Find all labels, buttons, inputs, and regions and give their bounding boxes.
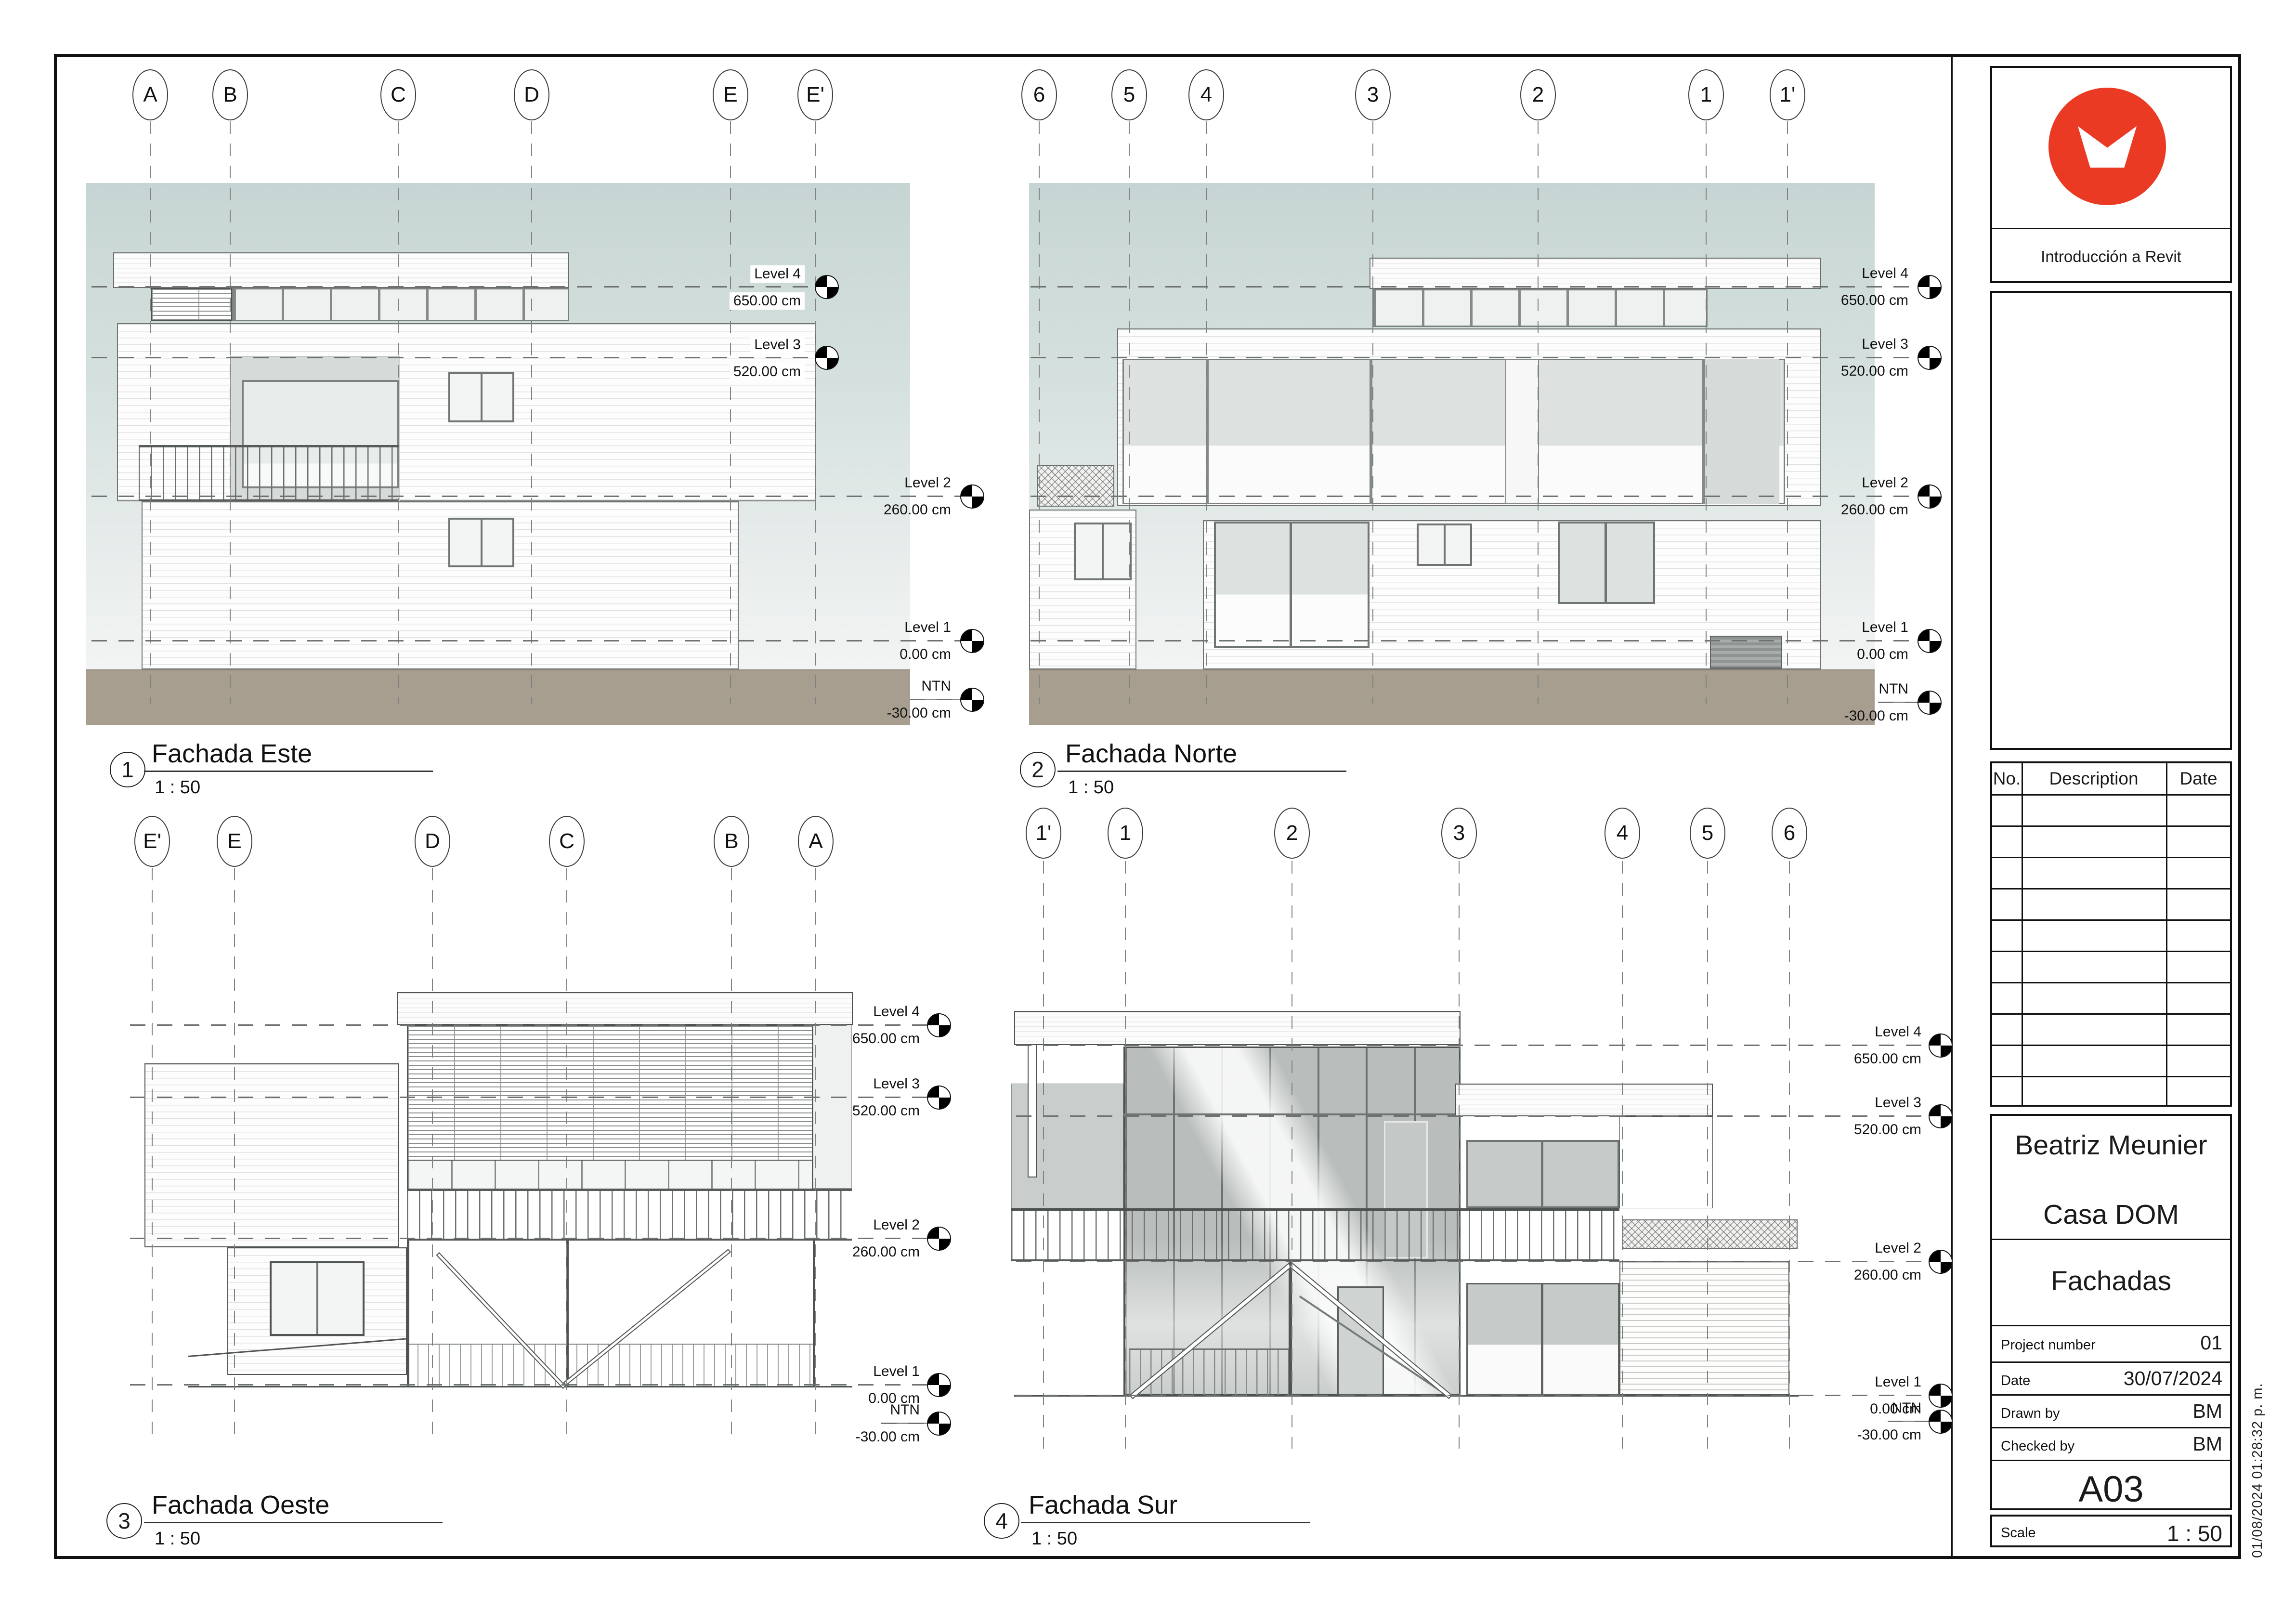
level-head-icon [927, 1013, 951, 1037]
view-title: Fachada Sur [1029, 1490, 1177, 1520]
view-title: Fachada Oeste [152, 1490, 329, 1520]
field-value-checked-by: BM [2193, 1433, 2223, 1455]
view-number-1: 1 [110, 752, 145, 787]
grid-line-E' [815, 121, 816, 704]
field-label-project-number: Project number [2001, 1337, 2096, 1353]
grid-line-1 [1706, 121, 1707, 704]
level-line-NTN [1878, 702, 1919, 703]
view-number-4: 4 [984, 1503, 1019, 1539]
field-label-date: Date [2001, 1373, 2030, 1389]
level-elevation: 260.00 cm [884, 502, 951, 518]
revision-col-date: Date [2166, 763, 2231, 794]
level-head-icon [927, 1373, 951, 1397]
level-name: Level 4 [1875, 1024, 1921, 1040]
norte-right-panel [1705, 359, 1779, 504]
grid-bubble-5: 5 [1690, 808, 1725, 859]
level-elevation: -30.00 cm [1844, 708, 1908, 724]
level-name: Level 1 [1862, 619, 1908, 636]
revision-empty-row [1992, 919, 2230, 952]
norte-roof-slab [1370, 258, 1821, 289]
level-name: Level 4 [1862, 265, 1908, 282]
level-head-icon [927, 1227, 951, 1251]
level-line-Level 2 [91, 496, 962, 497]
oeste-louver-screen [407, 1025, 813, 1161]
level-line-Level 4 [1016, 1045, 1930, 1046]
level-elevation: 260.00 cm [852, 1244, 920, 1260]
este-clerestory-louver [151, 288, 232, 321]
view-scale: 1 : 50 [155, 777, 200, 798]
level-elevation: 520.00 cm [852, 1103, 920, 1119]
grid-line-3 [1459, 861, 1460, 1449]
view-number-3: 3 [106, 1503, 142, 1539]
level-elevation: -30.00 cm [1857, 1427, 1921, 1443]
grid-line-C [398, 121, 399, 704]
course-title: Introducción a Revit [1992, 229, 2230, 284]
grid-bubble-1: 1 [1688, 69, 1724, 120]
este-window-mid [448, 372, 514, 422]
level-line-Level 1 [130, 1384, 928, 1386]
grid-bubble-3: 3 [1441, 808, 1477, 859]
level-head-icon [1918, 275, 1942, 299]
revision-empty-row [1992, 794, 2230, 827]
level-elevation: 520.00 cm [730, 363, 805, 380]
grid-line-E [730, 121, 731, 704]
grid-line-5 [1707, 861, 1708, 1449]
level-line-Level 4 [91, 286, 816, 288]
grid-line-4 [1622, 861, 1623, 1449]
grid-bubble-E: E [713, 69, 748, 120]
level-line-Level 4 [1031, 286, 1919, 288]
project-name: Casa DOM [1992, 1199, 2230, 1230]
domestika-logo-icon [2048, 88, 2166, 205]
view-title-underline [1021, 1522, 1310, 1523]
field-label-checked-by: Checked by [2001, 1439, 2074, 1454]
level-name: NTN [921, 678, 951, 694]
level-head-icon [927, 1412, 951, 1436]
grid-bubble-E': E' [797, 69, 833, 120]
view-scale: 1 : 50 [155, 1529, 200, 1549]
grid-line-1' [1043, 861, 1044, 1449]
grid-line-6 [1039, 121, 1040, 704]
level-elevation: 260.00 cm [1841, 502, 1908, 518]
scale-value: 1 : 50 [2167, 1520, 2222, 1546]
level-head-icon [960, 484, 984, 509]
grid-bubble-2: 2 [1274, 808, 1310, 859]
level-head-icon [1929, 1410, 1953, 1434]
este-roof-slab [113, 252, 569, 288]
norte-sliding-door-mullion [1290, 522, 1292, 648]
level-elevation: 0.00 cm [900, 646, 951, 663]
level-name: Level 2 [1862, 475, 1908, 491]
este-ground [86, 669, 910, 725]
grid-line-B [731, 868, 732, 1441]
view-title-underline [1057, 771, 1346, 772]
sheet-name: Fachadas [1992, 1265, 2230, 1297]
sur-right-glazed-doors-mullion [1541, 1283, 1543, 1395]
grid-bubble-A: A [132, 69, 168, 120]
view-scale: 1 : 50 [1031, 1529, 1077, 1549]
grid-bubble-1: 1 [1108, 808, 1143, 859]
grid-bubble-5: 5 [1111, 69, 1147, 120]
titleblock-empty-box [1990, 291, 2232, 750]
field-value-drawn-by: BM [2193, 1400, 2223, 1423]
level-line-NTN [1888, 1421, 1930, 1422]
level-line-Level 1 [1016, 1395, 1930, 1396]
revision-table: No. Description Date [1990, 761, 2232, 1107]
grid-line-1' [1787, 121, 1788, 704]
grid-bubble-C: C [549, 816, 585, 867]
grid-line-D [531, 121, 532, 704]
level-head-icon [1929, 1384, 1953, 1408]
este-balcony-railing [139, 445, 399, 501]
view-number-2: 2 [1020, 752, 1056, 787]
level-elevation: 650.00 cm [852, 1031, 920, 1047]
level-head-icon [1918, 691, 1942, 715]
norte-window-small [1417, 523, 1472, 566]
grid-line-A [815, 868, 816, 1441]
level-line-Level 3 [91, 357, 816, 358]
grid-line-B [230, 121, 231, 704]
sur-right-wall [1619, 1116, 1713, 1208]
level-head-icon [1918, 484, 1942, 509]
level-line-Level 2 [1016, 1261, 1930, 1262]
revision-col-description: Description [2022, 763, 2166, 794]
grid-line-2 [1291, 861, 1292, 1449]
grid-line-2 [1538, 121, 1539, 704]
level-name: Level 3 [750, 336, 805, 353]
oeste-side-panel [813, 1025, 852, 1189]
level-line-NTN [881, 1423, 928, 1424]
field-value-date: 30/07/2024 [2124, 1367, 2222, 1390]
level-name: Level 4 [750, 265, 805, 283]
level-name: NTN [1879, 681, 1908, 697]
sur-lower-door [1337, 1286, 1384, 1395]
level-name: Level 1 [1875, 1374, 1921, 1390]
grid-bubble-D: D [514, 69, 549, 120]
sur-lower-slats [1129, 1348, 1291, 1395]
scale-label: Scale [2001, 1525, 2036, 1541]
view-scale: 1 : 50 [1068, 777, 1114, 798]
grid-bubble-1': 1' [1026, 808, 1061, 859]
grid-bubble-E': E' [134, 816, 170, 867]
sur-right-lower-volume [1619, 1261, 1789, 1395]
level-head-icon [1929, 1033, 1953, 1058]
level-elevation: 520.00 cm [1854, 1122, 1921, 1138]
grid-bubble-1': 1' [1770, 69, 1805, 120]
grid-line-C [566, 868, 567, 1441]
field-label-drawn-by: Drawn by [2001, 1406, 2060, 1422]
grid-bubble-6: 6 [1021, 69, 1057, 120]
revision-empty-row [1992, 857, 2230, 889]
sur-right-roof [1455, 1084, 1713, 1116]
revision-empty-row [1992, 951, 2230, 983]
grid-line-A [150, 121, 151, 704]
norte-fence-hatch [1037, 465, 1114, 507]
level-name: NTN [890, 1402, 920, 1418]
level-line-Level 1 [91, 640, 962, 641]
level-elevation: 260.00 cm [1854, 1267, 1921, 1283]
level-name: Level 1 [873, 1363, 920, 1380]
grid-bubble-A: A [798, 816, 834, 867]
level-line-Level 2 [130, 1238, 928, 1239]
level-head-icon [1918, 346, 1942, 370]
norte-ground [1029, 669, 1875, 725]
oeste-post-left [407, 1241, 409, 1386]
level-name: Level 1 [904, 619, 951, 636]
grid-line-1 [1125, 861, 1126, 1449]
level-head-icon [960, 629, 984, 653]
level-elevation: 520.00 cm [1841, 363, 1908, 379]
sheet-number: A03 [1992, 1468, 2230, 1510]
revision-empty-row [1992, 1045, 2230, 1077]
titleblock-separator [1951, 54, 1953, 1559]
titleblock-info-box: Beatriz Meunier Casa DOM Fachadas Projec… [1990, 1114, 2232, 1510]
level-line-Level 4 [130, 1024, 928, 1026]
grid-bubble-C: C [380, 69, 416, 120]
level-line-Level 1 [1031, 640, 1919, 641]
level-line-Level 3 [1031, 357, 1919, 358]
oeste-balcony-railing [407, 1189, 852, 1241]
level-line-Level 2 [1031, 496, 1919, 497]
oeste-open-band [407, 1161, 813, 1189]
view-title: Fachada Norte [1065, 739, 1237, 769]
level-head-icon [1929, 1250, 1953, 1274]
level-head-icon [1929, 1104, 1953, 1128]
level-elevation: -30.00 cm [856, 1429, 920, 1445]
titleblock-scale-box: Scale 1 : 50 [1990, 1515, 2232, 1547]
este-clerestory-window [232, 288, 569, 321]
field-value-project-number: 01 [2200, 1332, 2222, 1354]
grid-bubble-4: 4 [1605, 808, 1640, 859]
norte-clerestory-window [1372, 289, 1708, 327]
grid-line-D [432, 868, 433, 1441]
level-head-icon [815, 275, 839, 299]
grid-line-5 [1129, 121, 1130, 704]
level-line-Level 3 [130, 1097, 928, 1098]
grid-line-3 [1372, 121, 1373, 704]
grid-bubble-D: D [415, 816, 450, 867]
oeste-ground-line [188, 1386, 852, 1387]
sur-balcony-railing [1011, 1208, 1619, 1261]
level-elevation: 0.00 cm [1857, 646, 1908, 663]
este-lower-body [142, 501, 739, 669]
grid-line-E' [152, 868, 153, 1441]
level-name: Level 4 [873, 1004, 920, 1020]
norte-left-window [1074, 523, 1132, 580]
grid-line-E [234, 868, 235, 1441]
grid-bubble-2: 2 [1520, 69, 1556, 120]
grid-bubble-3: 3 [1355, 69, 1391, 120]
sur-roof-slab [1014, 1011, 1461, 1045]
level-name: Level 2 [904, 475, 951, 491]
norte-window-pier [1505, 359, 1539, 504]
revision-empty-row [1992, 888, 2230, 921]
level-head-icon [1918, 629, 1942, 653]
norte-window-band [1122, 359, 1785, 504]
view-title: Fachada Este [152, 739, 312, 769]
level-name: Level 2 [873, 1217, 920, 1233]
sur-right-window-mullion [1541, 1140, 1543, 1208]
oeste-left-upper-volume [144, 1063, 399, 1247]
revision-empty-row [1992, 982, 2230, 1015]
grid-bubble-B: B [714, 816, 749, 867]
drawing-sheet: Introducción a Revit No. Description Dat… [0, 0, 2296, 1622]
revision-col-no: No. [1992, 763, 2022, 794]
revision-empty-row [1992, 1076, 2230, 1109]
grid-line-4 [1206, 121, 1207, 704]
revision-empty-row [1992, 825, 2230, 858]
level-name: Level 2 [1875, 1240, 1921, 1256]
level-head-icon [927, 1086, 951, 1110]
level-name: Level 3 [873, 1076, 920, 1092]
grid-bubble-B: B [212, 69, 248, 120]
level-elevation: 650.00 cm [1841, 292, 1908, 309]
norte-window-pair-mullion [1605, 522, 1607, 604]
oeste-roof-slab [397, 992, 853, 1025]
sur-hatch-strip [1622, 1219, 1798, 1249]
print-timestamp: 01/08/2024 01:28:32 p. m. [2250, 1214, 2266, 1558]
level-head-icon [960, 688, 984, 712]
level-elevation: 650.00 cm [730, 292, 805, 310]
level-name: Level 3 [1862, 336, 1908, 353]
owner-name: Beatriz Meunier [1992, 1129, 2230, 1161]
level-name: NTN [1892, 1400, 1921, 1416]
level-head-icon [815, 346, 839, 370]
grid-bubble-6: 6 [1772, 808, 1807, 859]
oeste-window [270, 1261, 365, 1336]
titleblock-top-box: Introducción a Revit [1990, 66, 2232, 283]
view-title-underline [144, 1522, 443, 1523]
level-elevation: 650.00 cm [1854, 1051, 1921, 1067]
level-elevation: -30.00 cm [887, 705, 951, 721]
grid-bubble-E: E [217, 816, 252, 867]
level-line-Level 3 [1016, 1115, 1930, 1117]
view-title-underline [144, 771, 433, 772]
revision-empty-row [1992, 1013, 2230, 1046]
level-line-NTN [910, 699, 962, 700]
grid-bubble-4: 4 [1188, 69, 1224, 120]
grid-line-6 [1789, 861, 1790, 1449]
level-name: Level 3 [1875, 1095, 1921, 1111]
este-window-lower [448, 518, 514, 567]
